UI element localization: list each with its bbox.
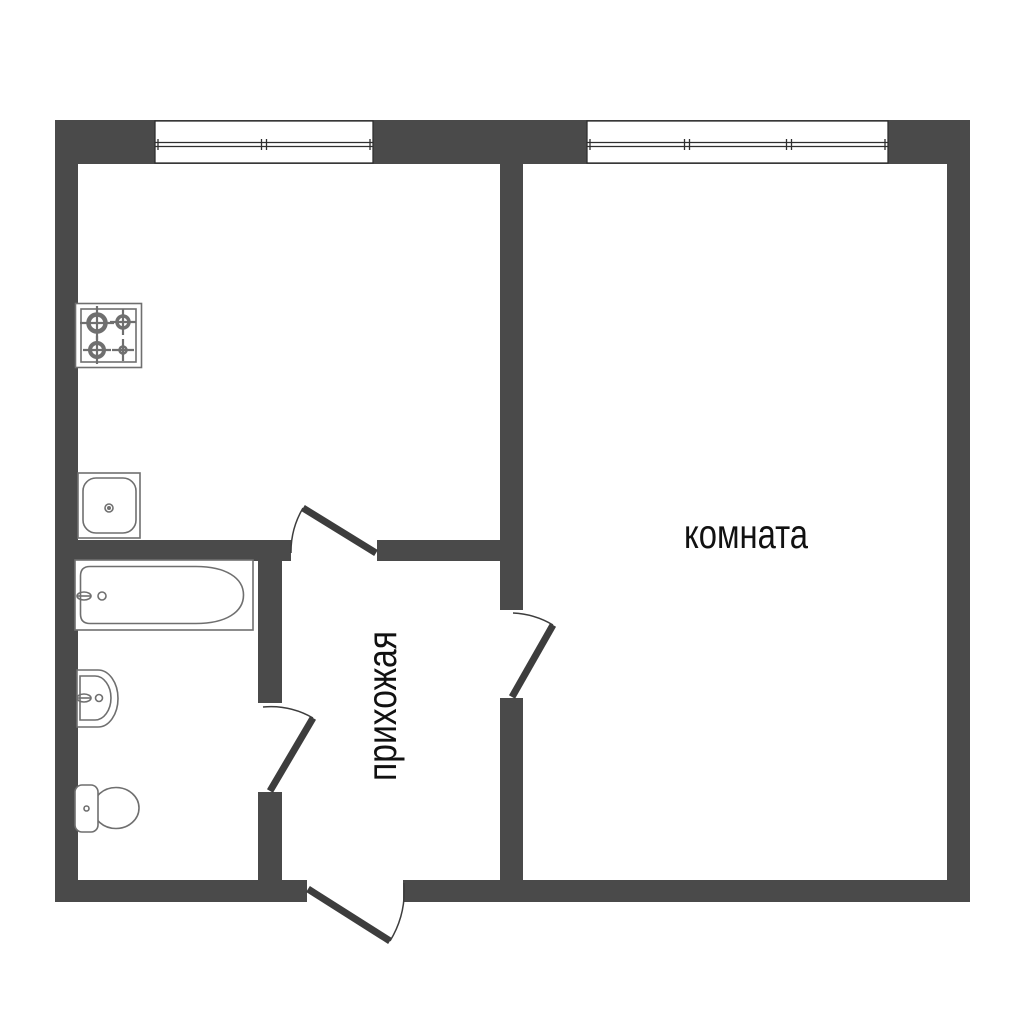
bathroom-door (263, 707, 313, 791)
wall-kitchen-left-segment (55, 540, 291, 561)
kitchen-door-leaf (303, 508, 376, 553)
kitchen-window (155, 121, 373, 163)
entrance-door-arc (390, 883, 404, 941)
kitchen-door (291, 508, 376, 553)
washbasin-icon (77, 670, 118, 727)
room-door-leaf (512, 625, 553, 697)
bathroom-door-leaf (270, 718, 313, 791)
toilet-tank (75, 785, 98, 832)
kitchen-door-arc (291, 508, 303, 553)
bathroom-door-arc (263, 707, 313, 718)
room-door-arc (513, 613, 553, 625)
toilet-bowl (93, 788, 139, 829)
wall-bottom-left-segment (55, 880, 307, 902)
wall-kitchen-right-segment (377, 540, 523, 561)
wall-bathroom-upper-segment (258, 561, 282, 703)
wall-right (947, 120, 970, 902)
room-window (587, 121, 888, 163)
entrance-door-leaf (308, 889, 390, 941)
wall-left (55, 120, 78, 902)
hallway-label: прихожая (359, 631, 405, 781)
stove-icon (76, 304, 142, 368)
kitchen-sink-icon (78, 473, 140, 538)
sink-drain-dot (108, 507, 110, 509)
walls (55, 120, 970, 902)
sink-outer-frame (78, 473, 140, 538)
floor-plan-canvas: комната прихожая (0, 0, 1024, 1024)
bathtub-outer-frame (75, 560, 253, 630)
stove-outer-frame (76, 304, 142, 368)
room-door (512, 613, 553, 697)
wall-bottom-right-segment (403, 880, 970, 902)
floor-plan: комната прихожая (0, 0, 1024, 1024)
toilet-icon (75, 785, 139, 832)
wall-bathroom-lower-segment (258, 792, 282, 880)
wall-room-lower-segment (500, 698, 523, 880)
entrance-door (308, 883, 404, 941)
room-label: комната (684, 511, 808, 557)
bathtub-icon (75, 560, 253, 630)
